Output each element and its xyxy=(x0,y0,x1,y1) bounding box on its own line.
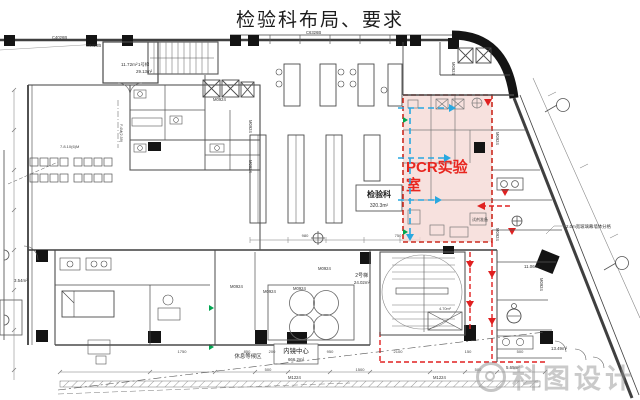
dimension-number: 850 xyxy=(244,349,251,354)
elevators xyxy=(203,80,254,97)
door-window-tag: M0924 xyxy=(248,120,253,133)
dimension-number: 500 xyxy=(475,367,482,372)
door-window-tag: C6326B xyxy=(306,30,321,35)
storage-room-area-label: 11.72m² xyxy=(121,62,138,67)
room-354-label: 3.54m² xyxy=(14,278,28,283)
bottom-rooms-left xyxy=(55,250,370,345)
pcr-label-line1: PCR实验 xyxy=(406,158,469,176)
lab-name-label: 检验科 xyxy=(367,189,391,199)
dimension-number: 950 xyxy=(327,349,334,354)
dimension-number: 150 xyxy=(465,349,472,354)
waiting-chairs xyxy=(8,158,112,184)
lab-area-label: 320.3m² xyxy=(370,203,389,209)
green-door-markers xyxy=(209,117,408,350)
shaft-area-label: 4.70m² xyxy=(439,307,452,311)
dimension-number: 750 xyxy=(395,233,402,238)
small-rooms-cluster xyxy=(130,75,260,250)
room-565-label: 5.65m² xyxy=(506,365,520,370)
door-window-tag: M0924 xyxy=(539,278,544,291)
pcr-label-line2: 室 xyxy=(406,176,421,194)
door-window-tag: M0924 xyxy=(293,286,306,291)
lab-name-box: 检验科 320.3m² xyxy=(356,185,402,211)
right-mid-rooms xyxy=(492,130,562,230)
dimension-number: 500 xyxy=(517,349,524,354)
endoscopy-area-label: 666.2m² xyxy=(288,357,305,362)
setback-tag-label: F.4M(2.59) xyxy=(119,124,123,143)
stair2-area-label: 24.02m² xyxy=(354,280,371,285)
room-1349-label: 13.49m² xyxy=(551,346,568,351)
stair2-name-label: 2号梯 xyxy=(355,272,368,279)
lab-benches-top xyxy=(276,64,402,106)
door-window-tag: M0924 xyxy=(451,62,456,75)
endoscopy-name-label: 内镜中心 xyxy=(283,346,309,355)
door-window-tag: M0924 xyxy=(495,132,500,145)
door-window-tag: M0924 xyxy=(263,289,276,294)
curtain-note-label: 2.0m宽玻璃幕墙体分格 xyxy=(566,223,611,230)
dimension-number: 1500 xyxy=(356,367,366,372)
stair1-name-label: 1号梯 xyxy=(138,61,150,68)
door-window-tag: M0924 xyxy=(230,284,243,289)
room-1106-label: 11.06m² xyxy=(524,264,540,269)
door-window-tag: M1224 xyxy=(288,375,301,380)
dimension-number: 500 xyxy=(265,367,272,372)
door-window-tag: C4026B xyxy=(52,35,67,40)
door-window-tag: M0924 xyxy=(318,266,331,271)
door-window-tag: M1224 xyxy=(433,375,446,380)
door-window-tag: C6326B xyxy=(86,43,101,48)
left-bottom-room xyxy=(0,100,118,364)
quatrefoil-room xyxy=(255,252,354,340)
door-window-tag: M0924 xyxy=(248,160,253,173)
dimension-number: 1750 xyxy=(178,349,188,354)
dimension-number: 200 xyxy=(269,349,276,354)
pcr-equipment-block xyxy=(474,142,485,153)
stair-2 xyxy=(370,250,465,345)
door-window-tag: M0924 xyxy=(213,97,226,102)
floorplan-screenshot: 检验科布局、要求 xyxy=(0,0,640,400)
door-window-tag: M0924 xyxy=(495,228,500,241)
dimension-number: 2100 xyxy=(394,349,404,354)
dimension-number: 980 xyxy=(302,233,309,238)
endoscopy-label-box: 内镜中心 666.2m² xyxy=(274,344,318,364)
wall-tag-label: 7.8.10(6)M xyxy=(60,144,79,149)
floorplan-canvas: 11.72m² 1号梯 29.13m² xyxy=(0,0,640,400)
pcr-lab-zone: PCR实验 室 试剂准备 xyxy=(403,95,492,242)
reagent-prep-label: 试剂准备 xyxy=(472,216,488,222)
stair1-area-label: 29.13m² xyxy=(136,69,153,74)
